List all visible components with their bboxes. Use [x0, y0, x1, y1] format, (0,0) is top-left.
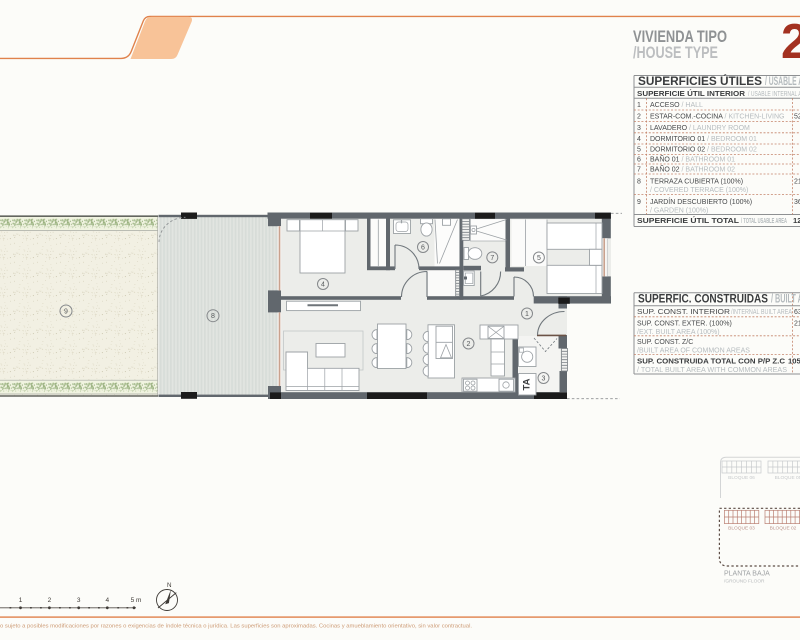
svg-text:9: 9	[64, 309, 68, 316]
svg-text:/EXT. BUILT AREA (100%): /EXT. BUILT AREA (100%)	[637, 329, 720, 336]
svg-text:DORMITORIO 02 / BEDROOM 02: DORMITORIO 02 / BEDROOM 02	[650, 147, 757, 154]
svg-text:BLOQUE 03: BLOQUE 03	[728, 526, 755, 532]
svg-text:/ COVERED TERRACE (100%): / COVERED TERRACE (100%)	[650, 187, 748, 194]
svg-text:1: 1	[19, 597, 23, 604]
svg-text:JARDÍN DESCUBIERTO (100%): JARDÍN DESCUBIERTO (100%)	[650, 197, 752, 206]
svg-text:3: 3	[77, 597, 81, 604]
svg-text:7: 7	[637, 167, 641, 174]
svg-text:SUPERFICIE ÚTIL INTERIOR: SUPERFICIE ÚTIL INTERIOR	[637, 89, 745, 98]
svg-text:SUPERFIC. CONSTRUIDAS: SUPERFIC. CONSTRUIDAS	[638, 294, 768, 306]
svg-text:BLOQUE 05: BLOQUE 05	[775, 475, 800, 481]
svg-text:/BUILT AREA OF COMMON AREAS: /BUILT AREA OF COMMON AREAS	[637, 348, 750, 355]
svg-text:BLOQUE 06: BLOQUE 06	[728, 475, 755, 481]
svg-text:36,50: 36,50	[794, 199, 800, 206]
svg-text:3: 3	[637, 125, 641, 132]
svg-text:63,45: 63,45	[794, 309, 800, 316]
svg-text:BLOQUE 02: BLOQUE 02	[770, 526, 797, 532]
svg-text:2: 2	[781, 15, 800, 69]
svg-text:8: 8	[211, 313, 215, 320]
svg-text:2: 2	[467, 341, 471, 348]
svg-text:ESTAR-COM.-COCINA / KITCHEN-LI: ESTAR-COM.-COCINA / KITCHEN-LIVING	[650, 114, 784, 121]
svg-text:52,85: 52,85	[794, 114, 800, 121]
svg-text:BAÑO 01 / BATHROOM 01: BAÑO 01 / BATHROOM 01	[650, 155, 735, 164]
svg-text:/HOUSE TYPE: /HOUSE TYPE	[633, 44, 718, 62]
svg-text:21,35: 21,35	[794, 179, 800, 186]
svg-text:/GROUND FLOOR: /GROUND FLOOR	[724, 579, 765, 585]
svg-text:SUPERFICIE ÚTIL TOTAL: SUPERFICIE ÚTIL TOTAL	[637, 216, 739, 225]
svg-text:SUP. CONST. EXTER. (100%): SUP. CONST. EXTER. (100%)	[637, 320, 732, 327]
svg-text:ACCESO / HALL: ACCESO / HALL	[650, 102, 703, 109]
svg-text:8: 8	[637, 179, 641, 186]
svg-text:TERRAZA CUBIERTA (100%): TERRAZA CUBIERTA (100%)	[650, 179, 743, 186]
svg-text:21,35: 21,35	[794, 320, 800, 327]
svg-text:BAÑO 02 / BATHROOM 02: BAÑO 02 / BATHROOM 02	[650, 165, 735, 174]
svg-text:LAVADERO / LAUNDRY ROOM: LAVADERO / LAUNDRY ROOM	[650, 125, 750, 132]
svg-text:105,60: 105,60	[788, 357, 800, 366]
svg-text:/ BUILT AREAS: / BUILT AREAS	[771, 294, 800, 306]
svg-text:5 m: 5 m	[131, 597, 142, 604]
svg-text:1: 1	[525, 311, 529, 318]
svg-text:124,05: 124,05	[793, 216, 800, 225]
svg-text:4: 4	[321, 282, 325, 289]
svg-text:/ USABLE AREAS: / USABLE AREAS	[765, 76, 800, 88]
svg-text:5: 5	[637, 147, 641, 154]
svg-text:4: 4	[105, 597, 109, 604]
svg-text:PLANTA BAJA: PLANTA BAJA	[724, 571, 770, 578]
svg-text:4: 4	[637, 136, 641, 143]
svg-text:6: 6	[421, 245, 425, 252]
svg-text:SUPERFICIES ÚTILES: SUPERFICIES ÚTILES	[638, 75, 762, 88]
svg-text:TA: TA	[522, 378, 533, 390]
svg-text:2: 2	[637, 114, 641, 121]
svg-text:/ TOTAL USABLE AREA: / TOTAL USABLE AREA	[741, 216, 787, 225]
svg-text:/ USABLE INTERNAL AREA: / USABLE INTERNAL AREA	[748, 91, 800, 98]
svg-text:/ GARDEN (100%): / GARDEN (100%)	[650, 208, 708, 215]
svg-text:5: 5	[537, 255, 541, 262]
svg-text:SUP. CONSTRUIDA TOTAL CON P/P: SUP. CONSTRUIDA TOTAL CON P/P Z.C	[637, 357, 786, 366]
svg-text:1: 1	[637, 102, 641, 109]
svg-text:3: 3	[542, 376, 546, 383]
svg-text:6: 6	[637, 157, 641, 164]
svg-text:DORMITORIO 01 / BEDROOM 01: DORMITORIO 01 / BEDROOM 01	[650, 136, 757, 143]
svg-text:N: N	[167, 582, 172, 589]
svg-text:SUP. CONST. Z/C: SUP. CONST. Z/C	[637, 339, 693, 346]
svg-text:SUP. CONST. INTERIOR: SUP. CONST. INTERIOR	[637, 309, 730, 316]
svg-text:2: 2	[48, 597, 52, 604]
svg-text:9: 9	[637, 199, 641, 206]
svg-text:7: 7	[490, 255, 494, 262]
svg-text:/INTERNAL BUILT AREA: /INTERNAL BUILT AREA	[731, 309, 792, 316]
svg-text:/ TOTAL BUILT AREA WITH COMMON: / TOTAL BUILT AREA WITH COMMON AREAS	[637, 367, 787, 374]
svg-text:o sujeto a posibles modificaci: o sujeto a posibles modificaciones por r…	[0, 624, 472, 630]
